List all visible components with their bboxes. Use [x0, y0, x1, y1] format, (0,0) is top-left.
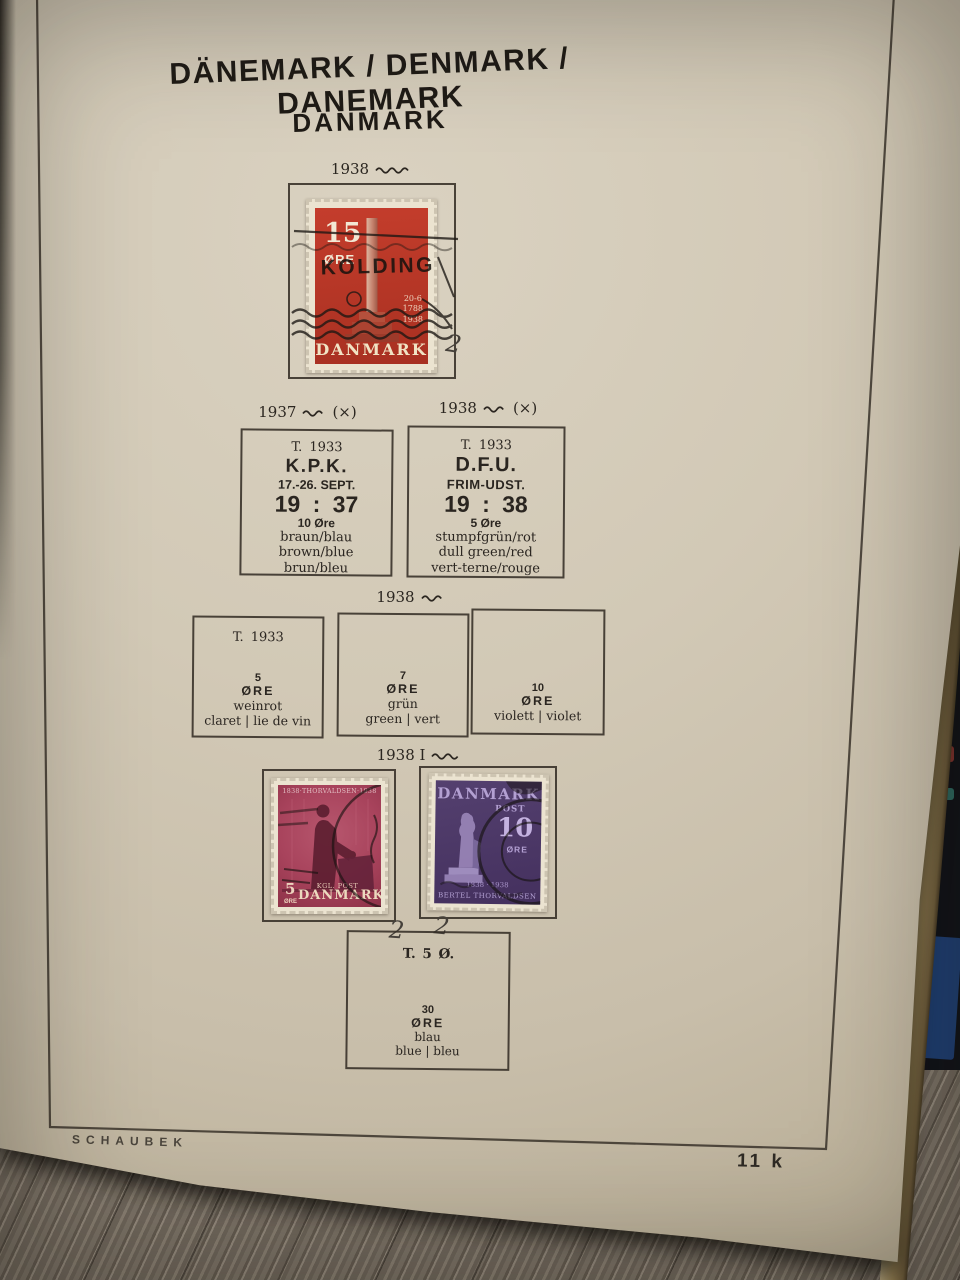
year-label-1938I: 1938 I [348, 746, 488, 764]
color-intl: claret | lie de vin [204, 713, 311, 729]
year-label-1938set: 1938 [338, 588, 483, 606]
type-line: T. 1933 [461, 438, 512, 453]
wavy-line-icon [431, 751, 459, 760]
color-intl: blue | bleu [395, 1044, 460, 1059]
color-de: grün [388, 696, 418, 711]
year-text: 1938 [331, 160, 369, 178]
hinged-mark: (×) [332, 403, 356, 421]
color-fr: vert-terne/rouge [431, 560, 540, 576]
type-line: T. 1933 [291, 440, 342, 455]
color-intl: green | vert [365, 711, 440, 727]
album-page-photo: DÄNEMARK / DENMARK / DANEMARK DANMARK 19… [0, 0, 960, 1280]
wavy-line-icon [375, 165, 409, 174]
stamp-15ore: 15 ØRE 20-6 1788 1938 DANMARK [306, 199, 437, 373]
dfu-box: T. 1933 D.F.U. FRIM-UDST. 19 : 38 5 Øre … [406, 425, 565, 578]
postmark-marks [278, 785, 381, 907]
kolding-postmark: KOLDING [290, 213, 462, 373]
event-year: 19 : 38 [444, 492, 528, 517]
color-en: brown/blue [279, 545, 354, 561]
year-label-1937x: 1937 (×) [250, 403, 365, 421]
currency: ØRE [386, 682, 419, 696]
year-label-1938: 1938 [295, 160, 445, 178]
type-line: T. 1933 [194, 630, 322, 646]
color-de: stumpfgrün/rot [435, 530, 536, 546]
wavy-line-icon [483, 404, 507, 413]
year-text: 1938 [439, 399, 477, 417]
hinged-mark: (×) [513, 399, 537, 417]
kpk-box: T. 1933 K.P.K. 17.-26. SEPT. 19 : 37 10 … [239, 428, 393, 576]
denomination: 5 Øre [470, 516, 501, 530]
type-line: T. 5 Ø. [348, 945, 508, 963]
denomination: 5 [255, 672, 261, 684]
color-fr: brun/bleu [284, 561, 348, 577]
denomination: 30 [422, 1004, 434, 1016]
left-edge-shadow [0, 0, 16, 660]
stamp-5ore-thorvaldsen: 1838·THORVALDSEN·1938 5 ØRE [271, 778, 388, 914]
stamp-10ore-design: DANMARK POST 10 ØRE 1838 · 1938 BERTEL T… [434, 780, 542, 904]
year-label-1938x: 1938 (×) [424, 399, 552, 417]
denomination: 10 [532, 682, 544, 694]
event-title: K.P.K. [285, 456, 348, 479]
postmark-marks [434, 780, 542, 904]
wavy-line-icon [421, 593, 445, 602]
year-text: 1937 [258, 403, 296, 421]
currency: ØRE [521, 694, 554, 708]
event-title: D.F.U. [455, 454, 517, 477]
color-de: braun/blau [280, 530, 352, 546]
def-box-5ore: T. 1933 5 ØRE weinrot claret | lie de vi… [192, 616, 325, 739]
color-en: dull green/red [439, 545, 533, 561]
year-text: 1938 [376, 588, 414, 606]
def-box-10ore: 10 ØRE violett | violet [471, 609, 606, 736]
def-box-7ore: 7 ØRE grün green | vert [337, 613, 470, 738]
postmark-town: KOLDING [320, 254, 435, 280]
color-de: blau [414, 1030, 441, 1044]
year-text: 1938 I [377, 746, 426, 764]
color-intl: violett | violet [494, 708, 581, 724]
stamp-5ore-design: 1838·THORVALDSEN·1938 5 ØRE [278, 785, 381, 907]
stamp-10ore-thorvaldsen: DANMARK POST 10 ØRE 1838 · 1938 BERTEL T… [427, 773, 549, 912]
currency: ØRE [241, 684, 274, 698]
wavy-line-icon [302, 408, 326, 417]
page-number: 11 k [737, 1150, 785, 1173]
currency: ØRE [411, 1016, 444, 1030]
event-year: 19 : 37 [275, 492, 359, 517]
box-30ore: T. 5 Ø. 30 ØRE blau blue | bleu [345, 930, 510, 1071]
denomination: 7 [400, 670, 406, 682]
denomination: 10 Øre [298, 516, 335, 530]
color-de: weinrot [233, 698, 282, 713]
page-subtitle: DANMARK [250, 103, 491, 140]
